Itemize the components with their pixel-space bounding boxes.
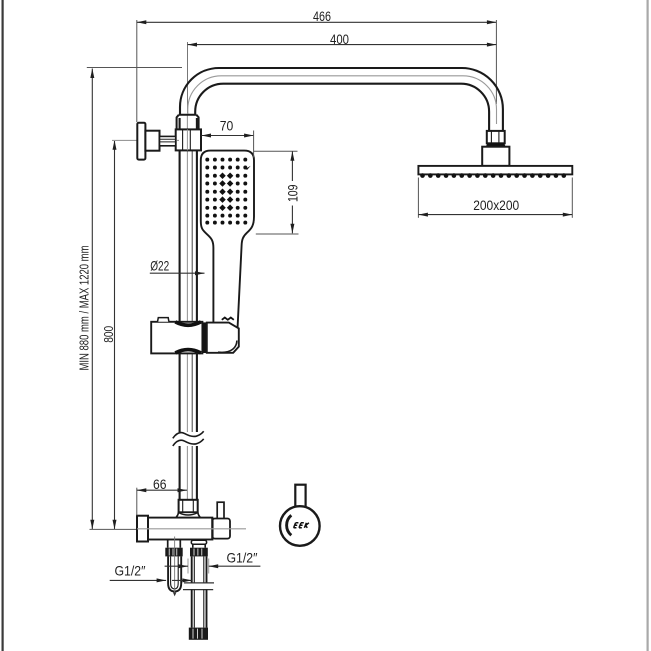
svg-text:800: 800 <box>101 326 116 343</box>
svg-text:G1/2″: G1/2″ <box>115 563 146 579</box>
svg-text:109: 109 <box>284 184 300 202</box>
svg-text:200x200: 200x200 <box>473 197 519 213</box>
svg-text:466: 466 <box>313 8 331 24</box>
svg-text:400: 400 <box>330 31 349 47</box>
svg-text:Ø22: Ø22 <box>150 258 169 274</box>
svg-text:70: 70 <box>220 118 234 134</box>
svg-text:G1/2″: G1/2″ <box>227 549 258 565</box>
svg-text:66: 66 <box>153 476 167 492</box>
svg-text:MIN 880 mm / MAX 1220 mm: MIN 880 mm / MAX 1220 mm <box>76 246 91 371</box>
